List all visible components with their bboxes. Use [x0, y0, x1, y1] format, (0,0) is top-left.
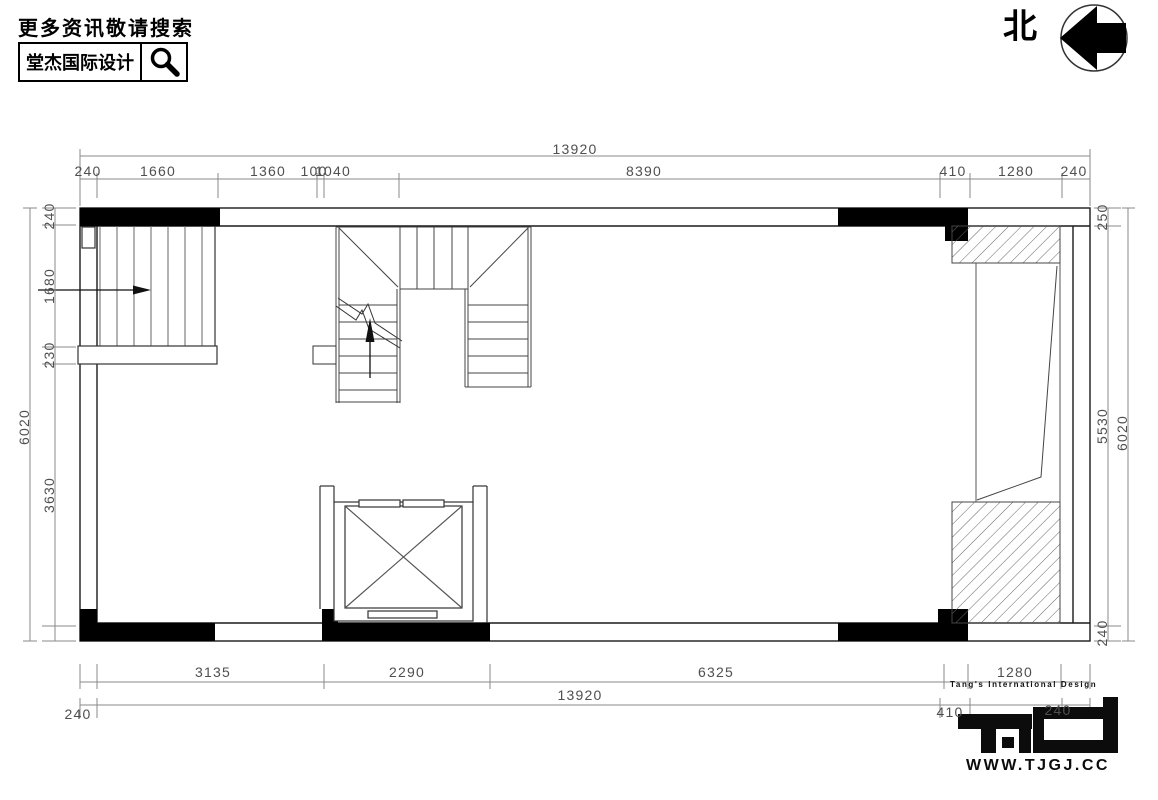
wall-fills — [80, 208, 968, 641]
dim-label: 240 — [75, 164, 102, 178]
central-staircase — [313, 227, 531, 403]
dim-label: 240 — [1045, 703, 1072, 717]
floor-plan-sheet: 更多资讯敬请搜索 堂杰国际设计 北 — [0, 0, 1158, 800]
dim-label: 1280 — [997, 665, 1033, 679]
dim-label: 410 — [937, 705, 964, 719]
dim-label: 1660 — [140, 164, 176, 178]
dim-label: 8390 — [626, 164, 662, 178]
dim-label: 410 — [940, 164, 967, 178]
dim-label: 3630 — [42, 477, 56, 513]
dim-label: 240 — [65, 707, 92, 721]
dim-label: 250 — [1095, 204, 1109, 231]
dim-label: 1360 — [250, 164, 286, 178]
dim-label: 3135 — [195, 665, 231, 679]
tid-logo-url: WWW.TJGJ.CC — [966, 757, 1110, 775]
dim-label: 230 — [42, 342, 56, 369]
dim-right-overall: 6020 — [1115, 415, 1129, 451]
tid-logo-subtitle: Tang's International Design — [950, 680, 1128, 689]
dim-label: 240 — [1061, 164, 1088, 178]
wall-outline — [80, 208, 1090, 641]
left-staircase — [38, 226, 217, 364]
right-duct-zone — [952, 226, 1060, 623]
dim-label: 5530 — [1095, 408, 1109, 444]
dim-top-overall: 13920 — [553, 142, 598, 156]
dim-bottom-overall: 13920 — [558, 688, 603, 702]
north-arrow-icon — [1060, 5, 1127, 71]
stair-direction-arrow — [133, 286, 151, 295]
dim-label: 1040 — [315, 164, 351, 178]
dim-label: 6325 — [698, 665, 734, 679]
dim-label: 1280 — [998, 164, 1034, 178]
dim-left-overall: 6020 — [17, 409, 31, 445]
dim-label: 240 — [42, 203, 56, 230]
dim-label: 240 — [1095, 620, 1109, 647]
dim-label: 2290 — [389, 665, 425, 679]
elevator-shaft — [320, 486, 487, 623]
dim-label: 1680 — [42, 268, 56, 304]
